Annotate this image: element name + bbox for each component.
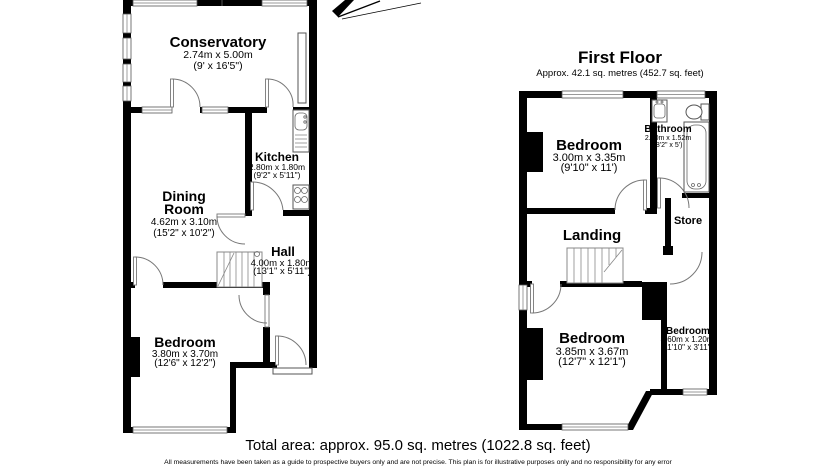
first-floor-header: First Floor Approx. 42.1 sq. metres (452… xyxy=(536,48,703,79)
kitchen-dims-ft: (9'2" x 5'11") xyxy=(254,170,301,180)
total-area-text: Total area: approx. 95.0 sq. metres (102… xyxy=(245,437,590,454)
hall-label: Hall xyxy=(271,244,295,259)
ff-bedroom1-dims-ft: (9'10" x 11') xyxy=(561,162,618,174)
hall-dims-ft: (13'1" x 5'11") xyxy=(253,266,311,277)
first-floor-staircase xyxy=(567,248,623,283)
north-arrow-partial xyxy=(332,0,421,19)
ground-floor-labels: Conservatory 2.74m x 5.00m (9' x 16'5") … xyxy=(151,34,314,369)
ff-bedroom2-label: Bedroom xyxy=(559,330,625,347)
bathroom-dims-m: 2.50m x 1.52m xyxy=(645,135,691,142)
dining-room-dims-ft: (15'2" x 10'2") xyxy=(153,228,215,239)
ground-floor-plan: Conservatory 2.74m x 5.00m (9' x 16'5") … xyxy=(123,0,317,433)
bathroom-label: Bathroom xyxy=(644,124,691,135)
first-floor-doors xyxy=(531,178,703,313)
footer: Total area: approx. 95.0 sq. metres (102… xyxy=(164,437,672,466)
floorplan-drawing: Conservatory 2.74m x 5.00m (9' x 16'5") … xyxy=(0,0,835,467)
first-floor-subtitle: Approx. 42.1 sq. metres (452.7 sq. feet) xyxy=(536,68,703,79)
ff-bedroom3-dims-ft: 11'10" x 3'11" xyxy=(663,343,710,352)
kitchen-sink-unit xyxy=(293,110,309,152)
bathroom-dims-ft: (8'2" x 5') xyxy=(654,142,683,149)
ff-bedroom2-dims-ft: (12'7" x 12'1") xyxy=(558,356,626,368)
ground-bedroom-label: Bedroom xyxy=(154,334,215,350)
ground-bedroom-dims-ft: (12'6" x 12'2") xyxy=(154,358,216,369)
disclaimer-text: All measurements have been taken as a gu… xyxy=(164,459,672,466)
first-floor-title: First Floor xyxy=(578,48,662,67)
dining-room-dims-m: 4.62m x 3.10m xyxy=(151,217,217,228)
first-floor-plan: First Floor Approx. 42.1 sq. metres (452… xyxy=(519,48,717,430)
floorplan-page: Conservatory 2.74m x 5.00m (9' x 16'5") … xyxy=(0,0,835,467)
store-label: Store xyxy=(674,215,702,227)
landing-label: Landing xyxy=(563,227,621,244)
dining-room-label-line2: Room xyxy=(164,201,204,217)
front-door-step xyxy=(273,368,312,374)
kitchen-hob xyxy=(293,185,309,209)
conservatory-dims-ft: (9' x 16'5") xyxy=(193,60,242,72)
bathroom-sink xyxy=(652,100,667,122)
toilet xyxy=(686,104,709,120)
